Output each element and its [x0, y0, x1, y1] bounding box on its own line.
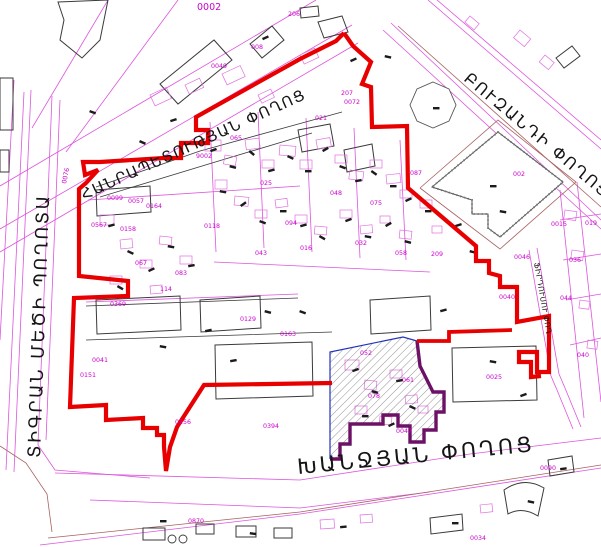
parcel-number-label: 114 [160, 286, 172, 293]
cadastral-map-viewport[interactable]: 0002206008004990020072207002001500460040… [0, 0, 601, 547]
parcel-box [360, 514, 373, 523]
redevelopment-hatch-area [330, 337, 444, 459]
parcel-number-label: 0158 [120, 226, 136, 233]
building-mark [365, 235, 372, 238]
parcel-box [150, 87, 171, 105]
building-footprint [300, 6, 319, 18]
building-footprint [274, 528, 292, 538]
building-mark [305, 170, 312, 172]
building-footprints-layer [0, 0, 580, 543]
street-line [0, 80, 14, 340]
building-footprint [96, 296, 181, 334]
parcel-number-label: 0156 [175, 419, 191, 426]
parcel-number-label: 044 [560, 295, 572, 302]
building-mark [108, 223, 115, 227]
parcel-box [320, 519, 335, 529]
parcel-number-label: 0369 [110, 301, 126, 308]
parcel-number-label: 0870 [188, 518, 204, 525]
parcel-box [255, 210, 267, 218]
building-mark [300, 223, 307, 227]
parcel-number-label: 0099 [107, 195, 123, 202]
parcel-number-label: 0015 [551, 221, 567, 228]
parcel-box [223, 155, 236, 166]
building-mark [490, 360, 497, 363]
building-footprint [556, 46, 580, 68]
building-mark [452, 522, 459, 524]
building-footprint [215, 342, 313, 399]
street-line [32, 0, 108, 128]
building-mark [264, 310, 271, 314]
parcel-number-label: 0076 [61, 167, 71, 184]
building-mark [160, 345, 167, 348]
parcel-box [245, 138, 260, 150]
parcel-number-label: 043 [255, 250, 267, 257]
building-footprint [236, 526, 256, 537]
parcel-number-label: 052 [360, 350, 372, 357]
building-footprint [370, 296, 431, 334]
parcel-box [480, 504, 493, 513]
building-mark [262, 35, 269, 40]
parcel-number-label: 0041 [92, 357, 108, 364]
building-mark [188, 264, 195, 267]
parcel-box [300, 160, 312, 169]
street-line [66, 0, 178, 152]
building-mark [127, 250, 134, 255]
building-mark [220, 190, 227, 193]
parcel-box [386, 174, 401, 184]
street-label-tigran-mets: ՏԻԳՐԱՆ ՄԵԾԻ ՊՈՂՈՏԱ [25, 193, 54, 458]
building-mark [385, 55, 392, 59]
building-mark [390, 185, 397, 187]
parcel-number-label: 067 [135, 260, 147, 267]
parcel-number-label: 021 [315, 115, 327, 122]
building-mark [250, 532, 257, 535]
parcel-number-label: 0025 [486, 374, 502, 381]
building-mark [89, 110, 96, 114]
building-mark [440, 308, 447, 312]
street-line [214, 262, 430, 272]
parcel-box [279, 145, 296, 156]
parcel-number-label: 058 [395, 250, 407, 257]
building-footprint [143, 528, 165, 540]
parcel-number-label: 0118 [204, 223, 220, 230]
parcel-box [180, 256, 192, 264]
building-mark [339, 165, 346, 169]
parcel-number-label: 0394 [263, 423, 279, 430]
parcel-box [159, 236, 172, 245]
building-mark [371, 170, 378, 176]
parcel-number-label: 0057 [128, 198, 144, 205]
building-mark [117, 285, 124, 290]
round-building [168, 535, 176, 543]
parcel-box [465, 16, 479, 30]
parcel-number-label: 0129 [240, 316, 256, 323]
building-footprint [160, 40, 232, 104]
building-mark [340, 525, 347, 528]
street-line [40, 468, 601, 545]
parcel-box [539, 55, 554, 70]
building-mark [280, 210, 287, 212]
building-mark [560, 467, 567, 470]
parcel-number-label: 0040 [499, 294, 515, 301]
building-mark [425, 210, 432, 212]
parcel-number-label: 008 [251, 44, 263, 51]
parcel-number-label: 061 [402, 377, 414, 384]
parcel-number-label: 0046 [514, 254, 530, 261]
parcel-number-label: 0164 [146, 203, 162, 210]
parcel-box [587, 340, 598, 349]
parcel-number-label: 016 [300, 245, 312, 252]
parcel-number-label: 040 [577, 352, 589, 359]
street-line [6, 92, 24, 470]
parcel-box [432, 226, 442, 233]
parcel-box [262, 160, 274, 168]
building-mark [490, 185, 497, 187]
parcel-number-label: 207 [341, 90, 353, 97]
cadastral-map-canvas: 0002206008004990020072207002001500460040… [0, 0, 601, 547]
parcel-number-label: 048 [330, 190, 342, 197]
parcel-number-label: 0002 [197, 2, 221, 13]
parcel-box [314, 226, 327, 235]
building-mark [230, 359, 237, 362]
parcel-box [120, 239, 133, 249]
parcel-number-label: 032 [355, 240, 367, 247]
octagon-building [410, 82, 456, 128]
parcel-number-label: 0047 [396, 428, 412, 435]
building-mark [350, 57, 357, 62]
street-line [577, 182, 601, 402]
parcel-number-label: 0163 [280, 331, 296, 338]
building-mark [528, 500, 535, 504]
fan-building-footprint [504, 482, 544, 516]
parcel-number-label: 036 [569, 257, 581, 264]
parcel-box [380, 216, 390, 223]
parcel-number-label: 0090 [540, 465, 556, 472]
parcel-box [316, 138, 331, 149]
parcel-number-label: 019 [585, 220, 597, 227]
site-boundary-red [70, 33, 549, 471]
parcel-box [215, 180, 227, 189]
street-label-firdusi: ՖԻՐԴՈՒՍՈՒ ՓՈՂ [532, 262, 553, 335]
building-mark [160, 520, 167, 522]
parcel-box [185, 78, 204, 94]
parcel-box [514, 30, 531, 47]
parcel-number-label: 0072 [344, 99, 360, 106]
building-mark [385, 222, 392, 227]
hatch-fill [330, 337, 444, 459]
parcel-number-label: 075 [370, 200, 382, 207]
parcel-number-label: 0151 [80, 372, 96, 379]
parcel-number-label: 078 [368, 393, 380, 400]
parcel-box [564, 210, 577, 221]
parcel-number-label: 9002 [196, 153, 212, 160]
building-mark [268, 168, 275, 172]
street-line [306, 118, 312, 252]
building-mark [299, 310, 306, 314]
parcel-number-label: 087 [410, 170, 422, 177]
parcel-number-label: 083 [175, 270, 187, 277]
parcel-box [399, 230, 412, 239]
parcel-number-label: 209 [431, 251, 443, 258]
parcel-number-label: 025 [260, 180, 272, 187]
building-mark [345, 218, 352, 222]
boundary-link [417, 330, 512, 341]
building-mark [433, 107, 440, 109]
building-mark [520, 393, 527, 397]
parcel-number-label: 0034 [470, 535, 486, 542]
building-footprint [58, 0, 108, 58]
parcel-box [275, 198, 288, 208]
parcel-number-label: 094 [285, 220, 297, 227]
parcel-number-label: 002 [513, 171, 525, 178]
parcel-number-label: 0567 [91, 222, 107, 229]
parcel-number-label: 0049 [211, 63, 227, 70]
building-footprint [0, 78, 13, 130]
parcel-box [360, 225, 373, 234]
parcel-box [340, 210, 352, 218]
building-footprint [0, 150, 9, 172]
parcel-box [579, 300, 590, 309]
parcel-number-label: 206 [288, 11, 300, 18]
building-mark [170, 118, 177, 122]
building-mark [319, 235, 326, 240]
building-footprint [250, 26, 284, 58]
round-building [179, 535, 187, 543]
building-mark [139, 140, 146, 145]
